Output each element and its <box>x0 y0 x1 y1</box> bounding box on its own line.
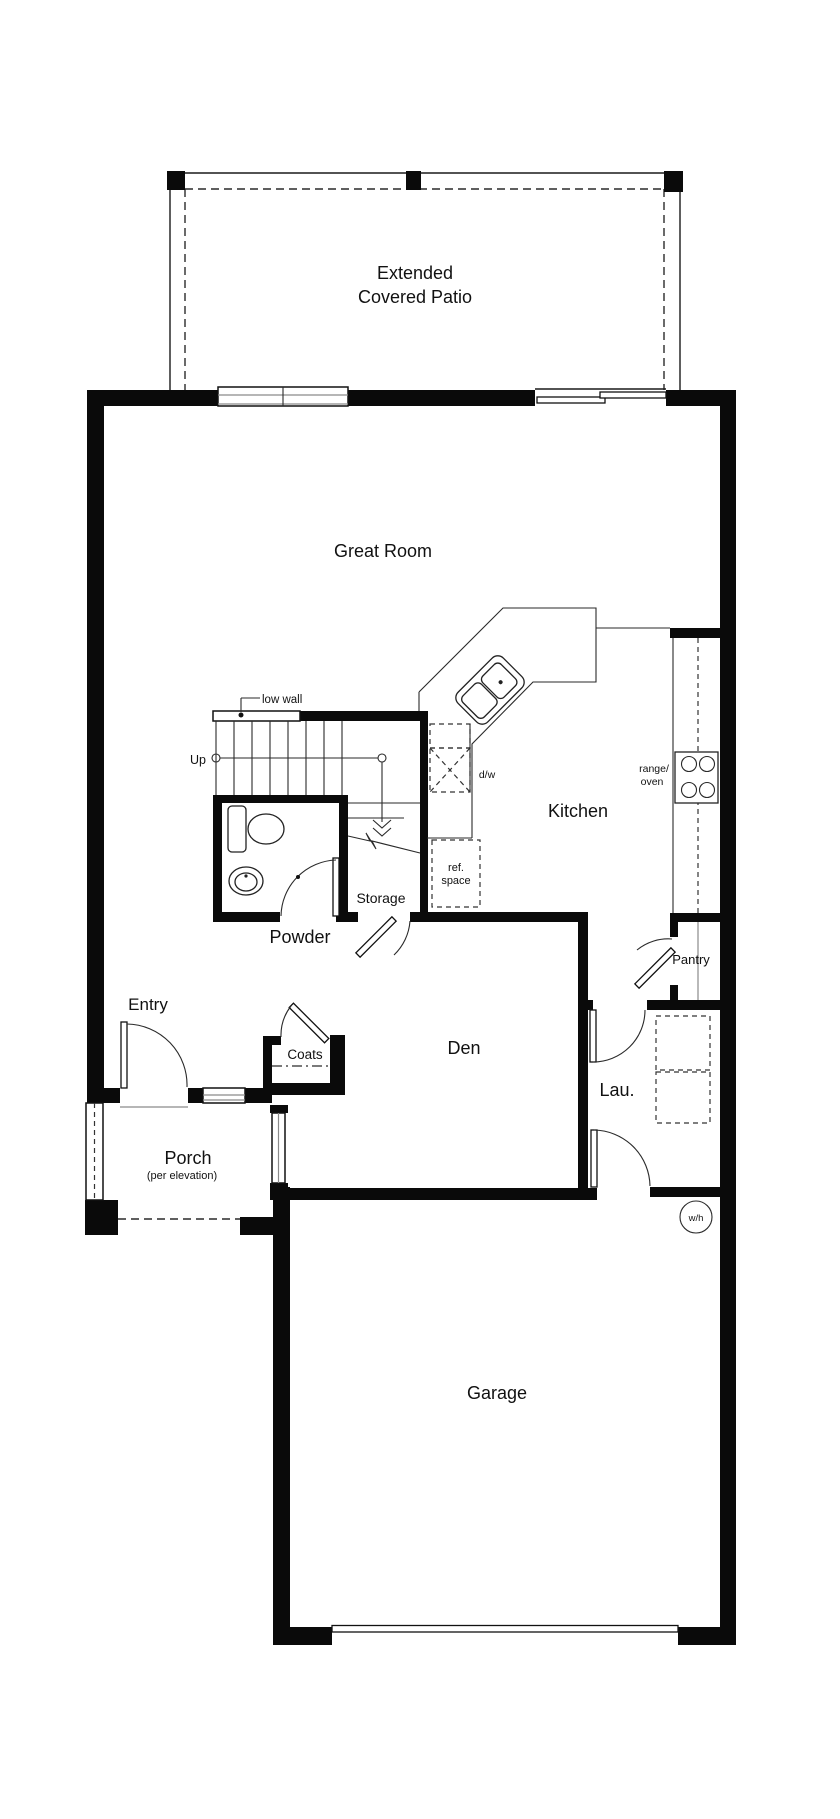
label-low-wall: low wall <box>262 694 302 706</box>
label-den: Den <box>447 1038 480 1058</box>
kitchen-sink-icon <box>453 653 528 728</box>
patio-sliding-glass-door <box>535 389 666 403</box>
sink-drain-dot <box>244 874 247 877</box>
storage-door-leaf <box>356 917 396 957</box>
stair-break-line <box>348 833 420 853</box>
den-porch-window <box>272 1113 285 1183</box>
label-powder: Powder <box>269 927 330 947</box>
low-wall-leader-line <box>241 698 260 712</box>
entry-door-leaf <box>121 1022 127 1088</box>
dishwasher-upper <box>430 724 470 748</box>
powder-door-dot <box>296 875 300 879</box>
label-entry: Entry <box>128 995 168 1014</box>
label-garage: Garage <box>467 1383 527 1403</box>
toilet-tank-icon <box>228 806 246 852</box>
dishwasher-x <box>430 748 470 792</box>
powder-room <box>228 806 339 916</box>
label-coats: Coats <box>287 1047 323 1062</box>
washer-box <box>656 1016 710 1070</box>
dryer-box <box>656 1072 710 1123</box>
range-oven-icon <box>675 752 718 803</box>
label-up: Up <box>190 753 206 767</box>
powder-door-leaf <box>333 858 339 916</box>
great-room-window <box>218 387 348 406</box>
porch-front-window <box>203 1088 245 1103</box>
entry-door-swing-arc <box>127 1024 187 1087</box>
pantry-door-swing-arc <box>637 939 672 950</box>
label-range-line1: range/ <box>639 763 669 775</box>
label-porch-note: (per elevation) <box>147 1170 217 1182</box>
label-laundry: Lau. <box>599 1080 634 1100</box>
under-stair-lines <box>348 803 420 818</box>
garage-entry-door-leaf <box>591 1130 597 1187</box>
coats-door-leaf <box>289 1003 329 1043</box>
label-storage: Storage <box>356 890 405 906</box>
garage <box>332 1201 712 1632</box>
floor-plan-page: Extended Covered Patio Great Room low wa… <box>0 0 840 1819</box>
dishwasher-icon <box>430 724 470 792</box>
label-pantry: Pantry <box>672 952 710 967</box>
laundry-door-leaf <box>590 1010 596 1062</box>
island-counter-outline <box>419 608 670 838</box>
slider-panel-2 <box>600 392 666 398</box>
low-wall-leader-dot <box>239 713 244 718</box>
coats-door-swing-arc <box>281 1006 291 1037</box>
garage-door-panel <box>332 1626 678 1633</box>
front-entry-door <box>120 1022 188 1107</box>
label-patio-line2: Covered Patio <box>358 287 472 307</box>
label-dishwasher: d/w <box>479 769 496 781</box>
laundry-door-swing-arc <box>593 1010 645 1062</box>
label-kitchen: Kitchen <box>548 801 608 821</box>
storage-closet-door <box>356 917 410 957</box>
storage-door-swing-arc <box>394 921 410 955</box>
label-range-line2: oven <box>641 776 664 788</box>
label-porch: Porch <box>164 1148 211 1168</box>
stair-run-end-node <box>378 754 386 762</box>
label-ref-line2: space <box>441 875 470 887</box>
exterior-and-interior-walls <box>85 390 736 1645</box>
label-great-room: Great Room <box>334 541 432 561</box>
garage-entry-door-swing-arc <box>594 1130 650 1186</box>
stair-direction-arrow-icon <box>373 820 391 836</box>
powder-door-swing-arc <box>281 860 336 916</box>
label-water-heater: w/h <box>688 1213 704 1224</box>
label-patio-line1: Extended <box>377 263 453 283</box>
slider-panel-1 <box>537 397 605 403</box>
floor-plan-canvas: Extended Covered Patio Great Room low wa… <box>0 0 840 1819</box>
pantry-door-leaf <box>635 948 675 988</box>
toilet-bowl-icon <box>248 814 284 844</box>
low-wall-symbol <box>213 711 300 721</box>
label-ref-line1: ref. <box>448 862 464 874</box>
